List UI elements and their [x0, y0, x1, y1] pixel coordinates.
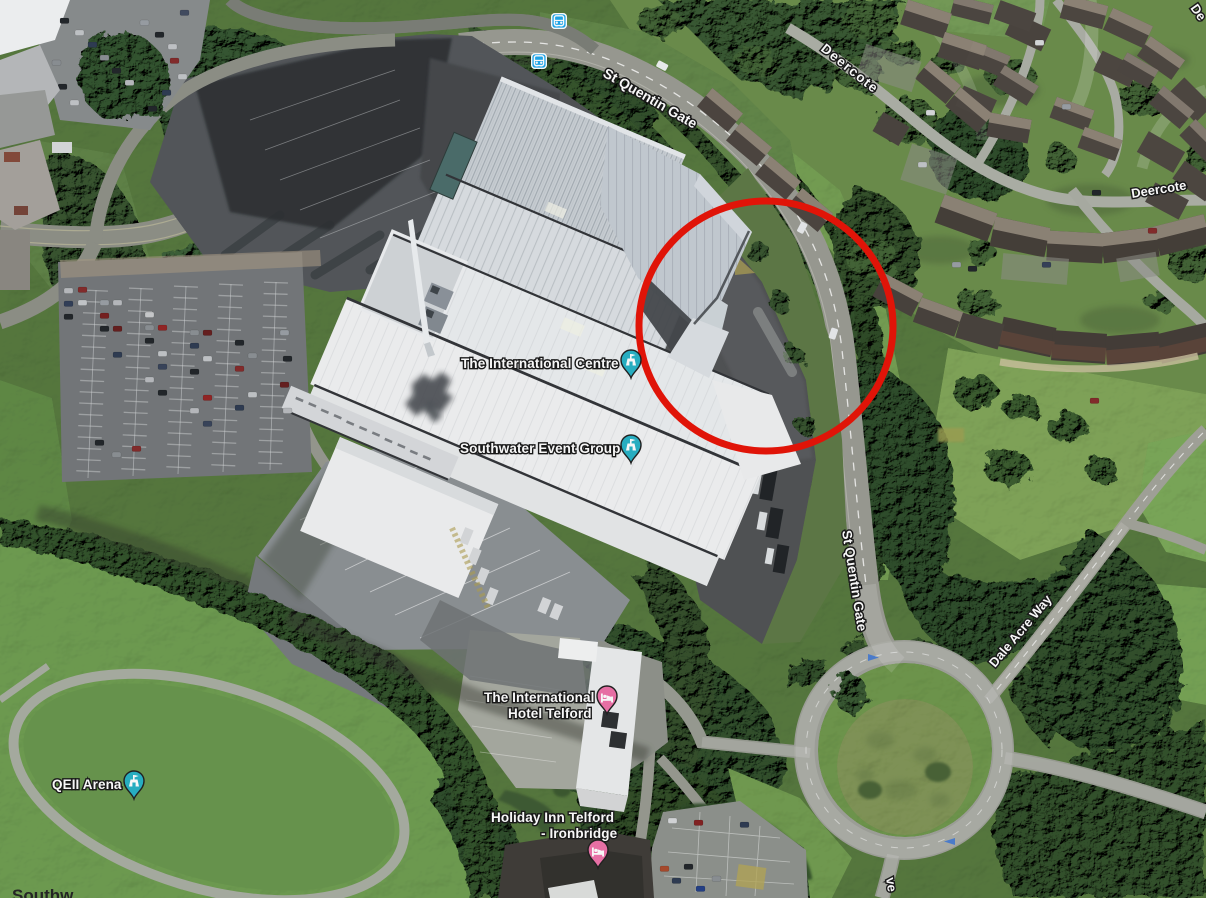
svg-text:- Ironbridge: - Ironbridge	[541, 826, 618, 841]
svg-text:Hotel Telford: Hotel Telford	[508, 706, 592, 721]
svg-text:Southwater Event Group: Southwater Event Group	[460, 441, 620, 456]
svg-text:ve: ve	[883, 876, 900, 892]
svg-text:The International Centre: The International Centre	[461, 356, 619, 371]
svg-text:Southw: Southw	[12, 886, 74, 898]
svg-text:QEII Arena: QEII Arena	[52, 777, 122, 792]
svg-text:Holiday Inn Telford: Holiday Inn Telford	[491, 810, 614, 825]
svg-text:The International: The International	[484, 690, 594, 705]
